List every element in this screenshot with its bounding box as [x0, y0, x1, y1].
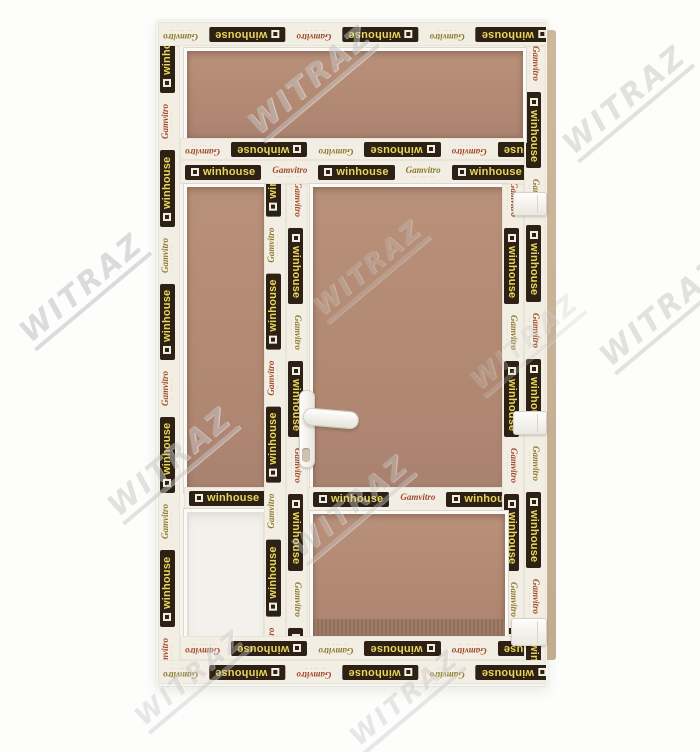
winhouse-badge: winhouse: [160, 550, 175, 626]
gamvitro-label: Gamvitro·· ··· ··: [288, 582, 303, 617]
pvc-window-door-unit: winhouseGamvitro·· ··· ··winhouseGamvitr…: [156, 20, 548, 686]
winhouse-logo-icon: [292, 500, 300, 508]
winhouse-logo-icon: [538, 668, 546, 676]
winhouse-badge: winhouse: [266, 184, 281, 217]
winhouse-badge: winhouse: [209, 665, 285, 680]
winhouse-label: winhouse: [336, 167, 388, 178]
winhouse-label: winhouse: [290, 246, 301, 298]
gamvitro-label: Gamvitro·· ··· ··: [452, 641, 487, 656]
winhouse-logo-icon: [270, 203, 278, 211]
winhouse-label: winhouse: [470, 167, 522, 178]
winhouse-label: winhouse: [506, 246, 517, 298]
winhouse-logo-icon: [319, 495, 327, 503]
gamvitro-label: Gamvitro·· ··· ··: [526, 579, 541, 614]
gamvitro-label: Gamvitro·· ··· ··: [504, 315, 519, 350]
witraz-watermark: WITRAZ: [13, 226, 151, 350]
witraz-watermark: WITRAZ: [556, 38, 694, 162]
winhouse-badge: winhouse: [504, 228, 519, 304]
winhouse-badge: winhouse: [288, 228, 303, 304]
winhouse-badge: winhouse: [526, 92, 541, 168]
winhouse-logo-icon: [270, 603, 278, 611]
winhouse-logo-icon: [530, 365, 538, 373]
winhouse-logo-icon: [271, 668, 279, 676]
winhouse-logo-icon: [530, 498, 538, 506]
gamvitro-label: Gamvitro·· ··· ··: [163, 27, 198, 42]
winhouse-label: winhouse: [504, 144, 524, 155]
winhouse-label: winhouse: [528, 110, 539, 162]
winhouse-logo-icon: [293, 145, 301, 153]
winhouse-badge: winhouse: [209, 27, 285, 42]
gamvitro-label: Gamvitro·· ··· ··: [163, 665, 198, 680]
winhouse-logo-icon: [270, 469, 278, 477]
gamvitro-label: Gamvitro·· ··· ··: [160, 237, 175, 272]
winhouse-label: winhouse: [268, 546, 279, 598]
winhouse-badge: winhouse: [342, 665, 418, 680]
gamvitro-label: Gamvitro·· ··· ··: [318, 142, 353, 157]
winhouse-badge: winhouse: [342, 27, 418, 42]
winhouse-label: winhouse: [237, 144, 289, 155]
gamvitro-label: Gamvitro·· ··· ··: [504, 448, 519, 483]
door-upper-glass-opening: [310, 184, 508, 493]
winhouse-badge: winhouse: [185, 165, 261, 180]
sidelight-upper-opening: [184, 184, 268, 493]
winhouse-logo-icon: [530, 231, 538, 239]
winhouse-label: winhouse: [268, 280, 279, 332]
winhouse-logo-icon: [508, 234, 516, 242]
winhouse-label: winhouse: [207, 493, 259, 504]
winhouse-logo-icon: [427, 145, 435, 153]
winhouse-badge: winhouse: [526, 225, 541, 301]
door-keyhole: [302, 448, 310, 462]
product-photo: winhouseGamvitro·· ··· ··winhouseGamvitr…: [0, 0, 700, 700]
winhouse-label: winhouse: [162, 423, 173, 475]
transom-tape-upper: winhouseGamvitro·· ··· ··winhouseGamvitr…: [180, 138, 524, 160]
winhouse-badge: winhouse: [313, 492, 389, 507]
door-mid-rail-tape: winhouseGamvitro·· ··· ··winhouseGamvitr…: [308, 487, 502, 511]
winhouse-badge: winhouse: [318, 165, 394, 180]
gamvitro-label: Gamvitro·· ··· ··: [526, 313, 541, 348]
winhouse-logo-icon: [458, 168, 466, 176]
door-hinge-bottom: [511, 618, 547, 646]
gamvitro-label: Gamvitro·· ··· ··: [452, 142, 487, 157]
winhouse-label: winhouse: [482, 667, 534, 678]
gamvitro-label: Gamvitro·· ··· ··: [526, 46, 541, 81]
gamvitro-label: Gamvitro·· ··· ··: [185, 142, 220, 157]
winhouse-logo-icon: [164, 479, 172, 487]
gamvitro-label: Gamvitro·· ··· ··: [266, 494, 281, 529]
door-bottom-rail-tape: winhouseGamvitro·· ··· ··winhouseGamvitr…: [180, 636, 524, 660]
gamvitro-label: Gamvitro·· ··· ··: [288, 184, 303, 217]
winhouse-logo-icon: [164, 612, 172, 620]
winhouse-badge: winhouse: [160, 46, 175, 93]
winhouse-label: winhouse: [162, 46, 173, 75]
gamvitro-label: Gamvitro·· ··· ··: [296, 27, 331, 42]
gamvitro-label: Gamvitro·· ··· ··: [160, 504, 175, 539]
winhouse-label: winhouse: [237, 643, 289, 654]
winhouse-logo-icon: [271, 30, 279, 38]
winhouse-label: winhouse: [528, 510, 539, 562]
winhouse-logo-icon: [292, 367, 300, 375]
transom-tape-lower: winhouseGamvitro·· ··· ··winhouseGamvitr…: [180, 160, 524, 184]
protective-tape-top: winhouseGamvitro·· ··· ··winhouseGamvitr…: [158, 22, 546, 46]
winhouse-logo-icon: [405, 30, 413, 38]
gamvitro-label: Gamvitro·· ··· ··: [266, 228, 281, 263]
winhouse-badge: winhouse: [364, 142, 440, 157]
winhouse-badge: winhouse: [189, 491, 264, 506]
winhouse-badge: winhouse: [266, 540, 281, 616]
gamvitro-label: Gamvitro·· ··· ··: [160, 371, 175, 406]
winhouse-badge: winhouse: [446, 492, 502, 507]
winhouse-badge: winhouse: [476, 27, 546, 42]
witraz-watermark: WITRAZ: [593, 250, 700, 374]
winhouse-label: winhouse: [268, 184, 279, 199]
winhouse-logo-icon: [508, 367, 516, 375]
winhouse-badge: winhouse: [498, 142, 524, 157]
winhouse-logo-icon: [292, 234, 300, 242]
gamvitro-label: Gamvitro·· ··· ··: [406, 165, 441, 180]
winhouse-label: winhouse: [215, 29, 267, 40]
winhouse-logo-icon: [164, 79, 172, 87]
winhouse-badge: winhouse: [288, 494, 303, 570]
gamvitro-label: Gamvitro·· ··· ··: [272, 165, 307, 180]
gamvitro-label: Gamvitro·· ··· ··: [266, 361, 281, 396]
winhouse-badge: winhouse: [231, 142, 307, 157]
winhouse-badge: winhouse: [476, 665, 546, 680]
winhouse-label: winhouse: [290, 512, 301, 564]
winhouse-badge: winhouse: [231, 641, 307, 656]
protective-tape-bottom: winhouseGamvitro·· ··· ··winhouseGamvitr…: [158, 660, 546, 684]
winhouse-logo-icon: [538, 30, 546, 38]
winhouse-logo-icon: [405, 668, 413, 676]
winhouse-logo-icon: [427, 644, 435, 652]
gamvitro-label: Gamvitro·· ··· ··: [400, 492, 435, 507]
winhouse-label: winhouse: [348, 667, 400, 678]
winhouse-logo-icon: [191, 168, 199, 176]
winhouse-label: winhouse: [528, 243, 539, 295]
mullion-tape: winhouseGamvitro·· ··· ··winhouseGamvitr…: [264, 184, 286, 660]
winhouse-label: winhouse: [203, 167, 255, 178]
winhouse-logo-icon: [508, 500, 516, 508]
door-hinge-top: [513, 192, 547, 216]
winhouse-logo-icon: [195, 494, 203, 502]
gamvitro-label: Gamvitro·· ··· ··: [526, 446, 541, 481]
winhouse-label: winhouse: [482, 29, 534, 40]
gamvitro-label: Gamvitro·· ··· ··: [430, 665, 465, 680]
winhouse-label: winhouse: [331, 494, 383, 505]
door-hinge-middle: [513, 411, 547, 435]
gamvitro-label: Gamvitro·· ··· ··: [296, 665, 331, 680]
winhouse-badge: winhouse: [266, 407, 281, 483]
protective-tape-right: winhouseGamvitro·· ··· ··winhouseGamvitr…: [524, 46, 546, 660]
winhouse-badge: winhouse: [266, 274, 281, 350]
winhouse-badge: winhouse: [160, 417, 175, 493]
winhouse-label: winhouse: [268, 413, 279, 465]
winhouse-logo-icon: [452, 495, 460, 503]
winhouse-badge: winhouse: [526, 492, 541, 568]
winhouse-logo-icon: [164, 346, 172, 354]
winhouse-label: winhouse: [348, 29, 400, 40]
winhouse-badge: winhouse: [452, 165, 524, 180]
gamvitro-label: Gamvitro·· ··· ··: [160, 104, 175, 139]
winhouse-badge: winhouse: [160, 283, 175, 359]
winhouse-label: winhouse: [162, 556, 173, 608]
winhouse-label: winhouse: [370, 643, 422, 654]
protective-tape-left: winhouseGamvitro·· ··· ··winhouseGamvitr…: [158, 46, 180, 684]
winhouse-logo-icon: [530, 98, 538, 106]
gamvitro-label: Gamvitro·· ··· ··: [185, 641, 220, 656]
winhouse-label: winhouse: [464, 494, 502, 505]
winhouse-label: winhouse: [162, 156, 173, 208]
winhouse-label: winhouse: [215, 667, 267, 678]
gamvitro-label: Gamvitro·· ··· ··: [430, 27, 465, 42]
winhouse-label: winhouse: [162, 289, 173, 341]
sidelight-lower-panel: [184, 509, 268, 642]
winhouse-badge: winhouse: [160, 150, 175, 226]
winhouse-logo-icon: [324, 168, 332, 176]
gamvitro-label: Gamvitro·· ··· ··: [318, 641, 353, 656]
sidelight-mid-rail-tape: winhouseGamvitro·· ··· ··: [184, 487, 264, 509]
winhouse-logo-icon: [293, 644, 301, 652]
frame-profile-side-edge: [547, 30, 556, 660]
winhouse-logo-icon: [270, 336, 278, 344]
winhouse-label: winhouse: [370, 144, 422, 155]
winhouse-logo-icon: [164, 212, 172, 220]
top-window-opening: [184, 48, 526, 142]
door-lower-glass-opening: [310, 511, 508, 642]
gamvitro-label: Gamvitro·· ··· ··: [288, 315, 303, 350]
winhouse-badge: winhouse: [364, 641, 440, 656]
